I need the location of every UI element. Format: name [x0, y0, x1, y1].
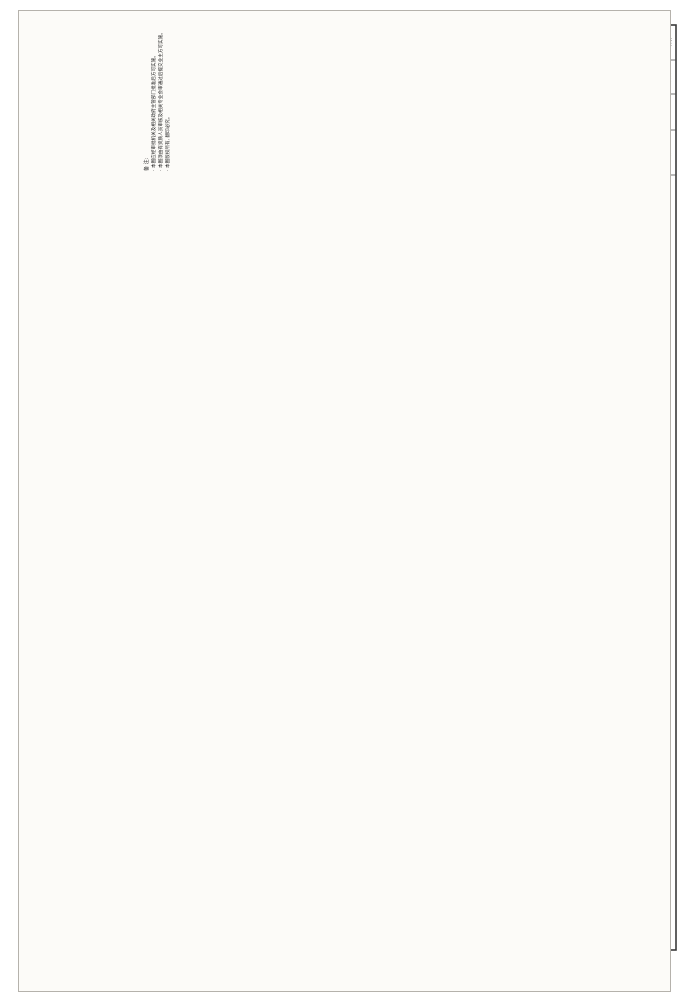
- note-line: 本图应经审批机关及相关政府主管部门批准后方可实施。: [152, 53, 159, 168]
- notes-title: 备 注:: [144, 29, 151, 171]
- scanned-drawing-page: 备 注: ·本图应经审批机关及相关政府主管部门批准后方可实施。 ·本图须由有资质…: [0, 0, 688, 1000]
- note-line: 本图须由有资质人员审核及相关专业会审通过后提交业主方可实施。: [159, 30, 166, 168]
- notes-block: 备 注: ·本图应经审批机关及相关政府主管部门批准后方可实施。 ·本图须由有资质…: [143, 27, 195, 173]
- note-line: 本图版权所有, 翻印必究。: [166, 115, 173, 168]
- paper-sheet: [18, 10, 671, 992]
